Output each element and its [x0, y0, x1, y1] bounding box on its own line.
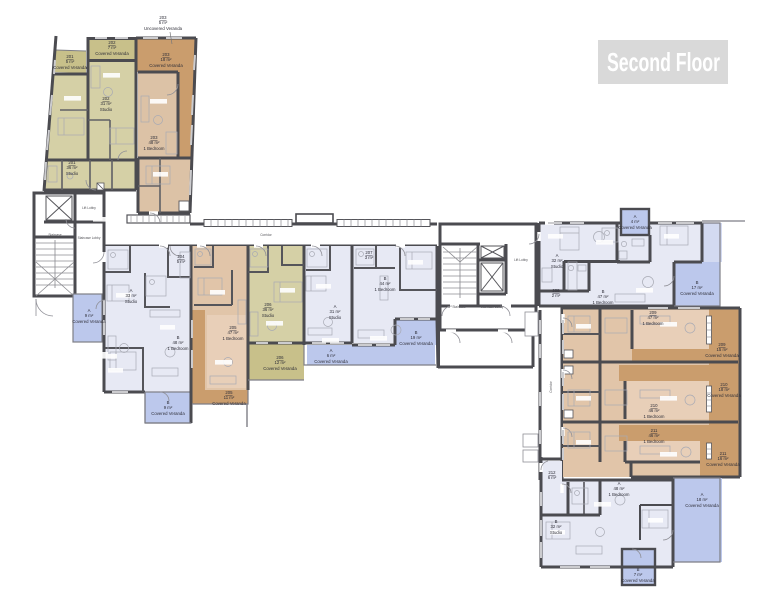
svg-text:1 Bedroom: 1 Bedroom [643, 439, 664, 444]
svg-text:2 m²: 2 m² [552, 293, 561, 298]
svg-text:Studio: Studio [100, 107, 113, 112]
svg-text:5 m²: 5 m² [159, 20, 168, 25]
svg-text:Covered Veranda: Covered Veranda [314, 359, 348, 364]
svg-text:18 m²: 18 m² [161, 57, 173, 62]
svg-text:Covered Veranda: Covered Veranda [95, 51, 129, 56]
svg-text:1 Bedroom: 1 Bedroom [643, 414, 664, 419]
svg-text:1 Bedroom: 1 Bedroom [642, 321, 663, 326]
svg-text:47 m²: 47 m² [598, 294, 610, 299]
svg-text:Covered Veranda: Covered Veranda [149, 63, 183, 68]
svg-text:Studio: Studio [125, 299, 138, 304]
svg-text:Corridor: Corridor [549, 380, 553, 392]
svg-text:48 m²: 48 m² [614, 486, 626, 491]
svg-text:48 m²: 48 m² [173, 340, 185, 345]
svg-text:1 Bedroom: 1 Bedroom [592, 300, 613, 305]
svg-text:Staircase: Staircase [452, 305, 466, 309]
svg-text:Corridor: Corridor [260, 233, 272, 237]
svg-text:1 Bedroom: 1 Bedroom [143, 146, 164, 151]
svg-text:Covered Veranda: Covered Veranda [212, 401, 246, 406]
svg-text:36 m²: 36 m² [263, 307, 275, 312]
svg-text:Covered Veranda: Covered Veranda [707, 393, 741, 398]
svg-text:31 m²: 31 m² [101, 101, 113, 106]
svg-text:3 m²: 3 m² [365, 255, 374, 260]
svg-text:18 m²: 18 m² [719, 387, 731, 392]
svg-text:36 m²: 36 m² [67, 165, 79, 170]
svg-text:12 m²: 12 m² [275, 360, 287, 365]
svg-text:Covered Veranda: Covered Veranda [72, 319, 106, 324]
svg-text:48 m²: 48 m² [149, 140, 161, 145]
svg-text:1 Bedroom: 1 Bedroom [608, 492, 629, 497]
svg-text:Staircase: Staircase [48, 233, 62, 237]
svg-text:18 m²: 18 m² [697, 497, 709, 502]
svg-text:7 m²: 7 m² [634, 572, 643, 577]
svg-text:Studio: Studio [551, 264, 564, 269]
svg-text:16 m²: 16 m² [718, 456, 730, 461]
svg-text:9 m²: 9 m² [164, 405, 173, 410]
svg-text:Covered Veranda: Covered Veranda [705, 353, 739, 358]
svg-text:32 m²: 32 m² [552, 258, 564, 263]
svg-text:Studio: Studio [550, 530, 563, 535]
svg-text:Covered Veranda: Covered Veranda [680, 291, 714, 296]
svg-text:15 m²: 15 m² [717, 347, 729, 352]
svg-text:Staircase Lobby: Staircase Lobby [78, 236, 101, 240]
svg-text:19 m²: 19 m² [411, 335, 423, 340]
svg-text:9 m²: 9 m² [85, 313, 94, 318]
svg-text:Lift Lobby: Lift Lobby [82, 206, 96, 210]
svg-text:6 m²: 6 m² [548, 475, 557, 480]
svg-text:1 Bedroom: 1 Bedroom [222, 336, 243, 341]
svg-text:Covered Veranda: Covered Veranda [685, 503, 719, 508]
svg-text:Studio: Studio [66, 171, 79, 176]
svg-text:Lift Lobby: Lift Lobby [514, 258, 528, 262]
svg-text:Covered Veranda: Covered Veranda [151, 411, 185, 416]
svg-text:46 m²: 46 m² [649, 433, 661, 438]
svg-text:1 Bedroom: 1 Bedroom [167, 346, 188, 351]
svg-text:44 m²: 44 m² [380, 281, 392, 286]
svg-text:32 m²: 32 m² [551, 524, 563, 529]
svg-text:5 m²: 5 m² [66, 59, 75, 64]
svg-text:Covered Veranda: Covered Veranda [263, 366, 297, 371]
svg-text:4 m²: 4 m² [631, 219, 640, 224]
svg-text:Second Floor: Second Floor [607, 47, 720, 77]
svg-text:47 m²: 47 m² [648, 315, 660, 320]
svg-text:17 m²: 17 m² [692, 285, 704, 290]
svg-text:31 m²: 31 m² [330, 309, 342, 314]
svg-text:11 m²: 11 m² [224, 395, 235, 400]
svg-text:47 m²: 47 m² [228, 330, 240, 335]
svg-text:Studio: Studio [262, 313, 275, 318]
svg-text:Studio: Studio [329, 315, 342, 320]
svg-text:Covered Veranda: Covered Veranda [399, 341, 433, 346]
svg-text:46 m²: 46 m² [649, 408, 661, 413]
svg-text:Covered Veranda: Covered Veranda [706, 462, 740, 467]
svg-text:1 Bedroom: 1 Bedroom [374, 287, 395, 292]
svg-text:Covered Veranda: Covered Veranda [618, 225, 652, 230]
svg-text:Covered Veranda: Covered Veranda [53, 65, 87, 70]
svg-text:Covered Veranda: Covered Veranda [621, 578, 655, 583]
svg-text:7 m²: 7 m² [108, 45, 117, 50]
svg-text:6 m²: 6 m² [327, 353, 336, 358]
svg-text:33 m²: 33 m² [126, 293, 138, 298]
svg-text:Uncovered Veranda: Uncovered Veranda [144, 26, 183, 31]
svg-text:5 m²: 5 m² [177, 259, 186, 264]
svg-text:Staircase Lobby: Staircase Lobby [481, 305, 504, 309]
